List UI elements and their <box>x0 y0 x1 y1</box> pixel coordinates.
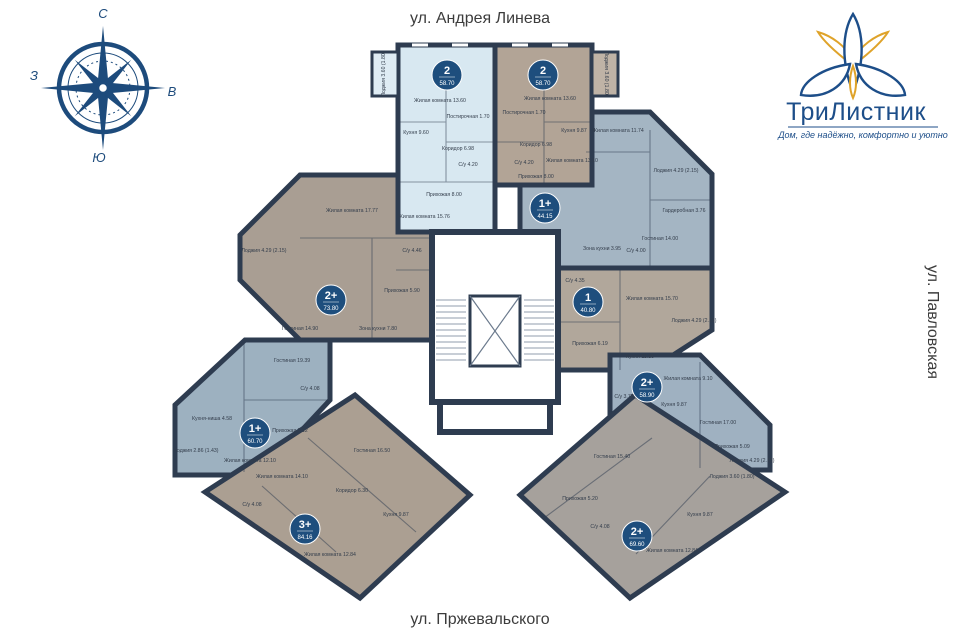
room-label: Зона кухни 3.95 <box>583 246 621 252</box>
apartment-badge[interactable]: 1+ 60.70 <box>240 418 270 448</box>
apartment-badge[interactable]: 2+ 58.90 <box>632 372 662 402</box>
room-label: Прихожая 5.20 <box>562 496 598 502</box>
room-label: Гостиная 19.39 <box>274 358 310 364</box>
room-label: Прихожая 8.00 <box>426 192 462 198</box>
room-label: Лоджия 3.60 (1.80) <box>381 51 387 96</box>
room-label: Прихожая 8.00 <box>518 174 554 180</box>
room-label: С/у 4.08 <box>300 386 319 392</box>
badge-rooms-count: 1+ <box>539 198 552 210</box>
badge-area: 69.60 <box>629 542 645 548</box>
badge-area: 84.16 <box>297 535 313 541</box>
building-plan: Жилая комната 13.60 Постирочная 1.70 Кух… <box>174 45 785 598</box>
room-label: Коридор 6.98 <box>442 146 474 152</box>
room-label: С/у 4.08 <box>590 524 609 530</box>
compass-south-label: Ю <box>92 150 105 165</box>
room-label: С/у 3.75 <box>614 394 633 400</box>
room-label: Гостиная 14.00 <box>642 236 678 242</box>
logo-trefoil-icon <box>801 14 905 98</box>
room-label: Жилая комната 17.77 <box>326 208 378 214</box>
room-label: Жилая комната 15.76 <box>398 214 450 220</box>
room-label: Постирочная 1.70 <box>503 110 546 116</box>
room-label: Жилая комната 9.10 <box>663 376 712 382</box>
entrance-hall <box>440 402 550 432</box>
apartment-badge[interactable]: 1 40.80 <box>573 287 603 317</box>
compass-east-label: В <box>168 84 177 99</box>
room-label: Жилая комната 11.74 <box>592 128 644 134</box>
badge-rooms-count: 2 <box>444 65 450 77</box>
badge-rooms-count: 1+ <box>249 423 262 435</box>
room-label: Коридор 6.98 <box>520 142 552 148</box>
room-label: Жилая комната 13.60 <box>414 98 466 104</box>
room-label: Лоджия 4.29 (2.15) <box>654 168 699 174</box>
room-label: Кухня 9.60 <box>403 130 429 136</box>
room-label: С/у 4.35 <box>565 278 584 284</box>
badge-area: 44.15 <box>537 214 553 220</box>
room-label: Кухня 9.87 <box>661 402 687 408</box>
room-label: Жилая комната 13.10 <box>546 158 598 164</box>
street-label-right: ул. Павловская <box>924 265 941 379</box>
logo-tagline: Дом, где надёжно, комфортно и уютно <box>777 130 948 140</box>
room-label: Лоджия 3.60 (1.80) <box>603 52 609 97</box>
room-label: Жилая комната 15.70 <box>626 296 678 302</box>
compass-north-label: С <box>98 6 108 21</box>
room-label: Гардеробная 3.76 <box>663 208 706 214</box>
room-label: Кухня 11.15 <box>626 354 654 360</box>
badge-rooms-count: 2+ <box>641 377 654 389</box>
elevator <box>470 296 520 366</box>
room-label: Жилая комната 13.60 <box>524 96 576 102</box>
room-label: Прихожая 5.90 <box>384 288 420 294</box>
room-label: Жилая комната 12.84 <box>646 548 698 554</box>
compass-west-label: З <box>30 68 38 83</box>
badge-area: 60.70 <box>247 439 263 445</box>
apartment-badge[interactable]: 2 58.70 <box>432 60 462 90</box>
room-label: Лоджия 2.86 (1.43) <box>174 448 219 454</box>
apartment-badge[interactable]: 2+ 69.60 <box>622 521 652 551</box>
room-label: Зона кухни 7.80 <box>359 326 397 332</box>
room-label: Жилая комната 12.84 <box>304 552 356 558</box>
compass-rose: С В Ю З <box>30 6 177 165</box>
street-label-bottom: ул. Пржевальского <box>410 611 549 628</box>
badge-rooms-count: 2+ <box>325 290 338 302</box>
badge-area: 40.80 <box>580 308 596 314</box>
apartment-badge[interactable]: 1+ 44.15 <box>530 193 560 223</box>
room-label: С/у 4.00 <box>626 248 645 254</box>
badge-area: 58.70 <box>535 81 551 87</box>
apartment-badge[interactable]: 2 58.70 <box>528 60 558 90</box>
floor-plan-page: ул. Андрея Линева ул. Пржевальского ул. … <box>0 0 960 640</box>
room-label: Гостиная 14.90 <box>282 326 318 332</box>
stairwell <box>432 232 558 432</box>
badge-rooms-count: 2+ <box>631 526 644 538</box>
room-label: Жилая комната 14.10 <box>256 474 308 480</box>
room-label: Лоджия 4.29 (2.15) <box>672 318 717 324</box>
room-label: Кухня 9.87 <box>383 512 409 518</box>
street-label-top: ул. Андрея Линева <box>410 10 550 27</box>
badge-rooms-count: 3+ <box>299 519 312 531</box>
room-label: Гостиная 15.40 <box>594 454 630 460</box>
room-label: Лоджия 3.60 (1.80) <box>710 474 755 480</box>
room-label: Кухня-ниша 4.58 <box>192 416 232 422</box>
apartment-badge[interactable]: 2+ 73.80 <box>316 285 346 315</box>
room-label: Гостиная 16.50 <box>354 448 390 454</box>
room-label: С/у 4.46 <box>402 248 421 254</box>
room-label: Лоджия 4.29 (2.15) <box>730 458 775 464</box>
badge-area: 58.90 <box>639 393 655 399</box>
room-label: Лоджия 4.29 (2.15) <box>242 248 287 254</box>
room-label: С/у 4.08 <box>242 502 261 508</box>
badge-area: 58.70 <box>439 81 455 87</box>
room-label: Кухня 9.87 <box>561 128 587 134</box>
room-label: С/у 4.20 <box>458 162 477 168</box>
room-label: Прихожая 6.19 <box>572 341 608 347</box>
room-label: Коридор 6.30 <box>336 488 368 494</box>
room-label: Прихожая 5.09 <box>714 444 750 450</box>
room-label: Кухня 9.87 <box>687 512 713 518</box>
room-label: Постирочная 1.70 <box>447 114 490 120</box>
room-label: С/у 4.20 <box>514 160 533 166</box>
badge-area: 73.80 <box>323 306 339 312</box>
room-label: Прихожая 7.12 <box>272 428 308 434</box>
logo: ТриЛистник Дом, где надёжно, комфортно и… <box>777 14 948 140</box>
badge-rooms-count: 1 <box>585 292 591 304</box>
logo-title: ТриЛистник <box>786 98 926 126</box>
badge-rooms-count: 2 <box>540 65 546 77</box>
room-label: Гостиная 17.00 <box>700 420 736 426</box>
room-label: Жилая комната 12.10 <box>224 458 276 464</box>
apartment-badge[interactable]: 3+ 84.16 <box>290 514 320 544</box>
